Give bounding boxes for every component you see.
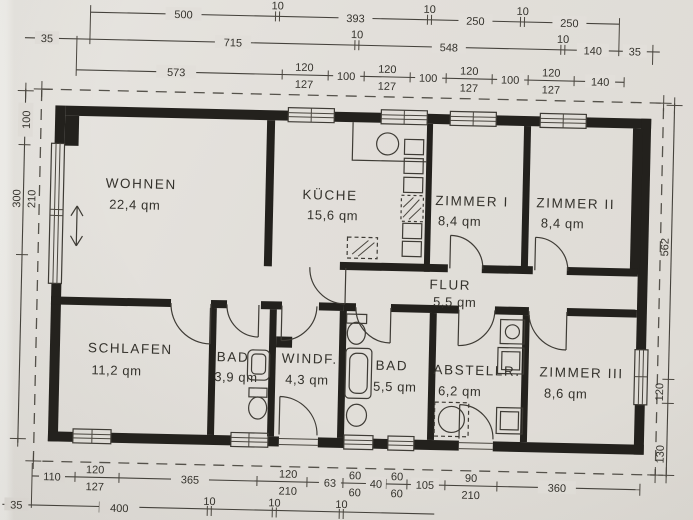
dim-label: 250: [466, 16, 485, 28]
dim-label: 10: [557, 34, 570, 46]
dim-label: 35: [629, 46, 642, 58]
window: [288, 108, 334, 123]
dim-label: 300: [11, 189, 23, 208]
room-area: 8,4 qm: [438, 213, 482, 229]
dim-label: 105: [416, 480, 435, 492]
dim-label: 60: [348, 487, 361, 499]
room-area: 22,4 qm: [109, 197, 161, 213]
dimension-chain-bottom: 110 120 127 365 120 210 63 60 60 40 60 6…: [2, 462, 640, 520]
room-name: BAD: [217, 349, 250, 365]
dim-label: 100: [419, 73, 438, 85]
dim-label: 573: [167, 67, 186, 79]
dim-label: 35: [10, 499, 23, 511]
window: [634, 350, 648, 405]
dim-label: 250: [560, 18, 579, 30]
stove-dashed: [347, 237, 377, 259]
dimension-chain-left: 100 300 210: [6, 82, 41, 447]
dim-label: 127: [85, 481, 104, 493]
dim-label: 140: [591, 77, 610, 89]
dim-label: 60: [391, 471, 404, 483]
dim-label: 60: [349, 470, 362, 482]
dimension-chain-right: 562 120 130: [652, 97, 683, 483]
door-zimmer-3: [528, 311, 567, 350]
dim-label: 140: [583, 45, 602, 57]
dim-label: 35: [41, 33, 54, 45]
scanned-floor-plan-photo: 500 10 393 10 250 10 250 35 715 10 548 1…: [0, 0, 693, 520]
entrance-door: [279, 397, 319, 446]
dim-label: 365: [181, 474, 200, 486]
door-schlafen: [170, 303, 211, 344]
room-name: KÜCHE: [302, 187, 358, 203]
dimension-chain-top: 500 10 393 10 250 10 250 35 715 10 548 1…: [24, 0, 661, 99]
rear-door: [459, 405, 494, 450]
window: [48, 143, 64, 283]
kitchen-sink: [376, 133, 398, 155]
room-name: FLUR: [429, 277, 471, 293]
dim-label: 10: [335, 499, 348, 511]
room-area: 5,5 qm: [373, 379, 417, 395]
dim-label: 360: [548, 483, 567, 495]
room-area: 15,6 qm: [307, 207, 359, 223]
windows: [45, 102, 654, 456]
dim-label: 120: [86, 464, 105, 476]
floor-plan-drawing: 500 10 393 10 250 10 250 35 715 10 548 1…: [0, 0, 693, 520]
dim-label: 548: [440, 42, 459, 54]
window: [450, 111, 496, 126]
dim-label: 10: [423, 4, 436, 16]
dim-label: 110: [43, 471, 61, 483]
bathroom-large-fixtures: [344, 314, 373, 427]
room-name: ZIMMER III: [539, 364, 624, 381]
window: [540, 113, 586, 128]
room-area: 5,5 qm: [433, 294, 477, 310]
dim-label: 100: [337, 71, 356, 83]
exterior-walls: [48, 105, 651, 454]
dim-label: 393: [346, 13, 365, 25]
dim-label: 90: [465, 473, 478, 485]
dim-label: 120: [378, 64, 397, 76]
room-name: BAD: [375, 358, 408, 374]
room-area: 11,2 qm: [91, 362, 142, 378]
dim-label: 130: [654, 445, 666, 464]
dim-label: 40: [370, 479, 383, 491]
door-windfang: [281, 306, 317, 342]
room-name: ABSTELLR.: [433, 362, 521, 379]
window: [381, 110, 427, 125]
dim-label: 10: [351, 29, 364, 41]
door-zimmer-1: [450, 235, 484, 269]
door-abstellraum: [458, 310, 495, 347]
door-zimmer-2: [535, 237, 569, 271]
wash-basin: [346, 404, 366, 426]
dim-label: 127: [378, 81, 397, 93]
dim-label: 100: [501, 74, 520, 86]
dim-label: 10: [203, 496, 216, 508]
toilet: [249, 388, 267, 397]
dim-label: 120: [654, 383, 666, 402]
window: [344, 435, 373, 450]
kitchen-counter: [352, 122, 427, 162]
dim-label: 120: [295, 62, 314, 74]
dim-label: 210: [26, 190, 38, 209]
dim-label: 120: [460, 66, 479, 78]
dim-label: 10: [516, 6, 529, 18]
room-area: 8,4 qm: [541, 215, 585, 231]
dim-label: 10: [268, 497, 281, 509]
dim-label: 10: [271, 0, 284, 12]
doors: [168, 229, 569, 451]
dim-label: 400: [110, 503, 129, 515]
dim-label: 500: [174, 9, 193, 21]
window: [231, 432, 268, 447]
kitchen-fixtures: [347, 122, 427, 260]
dim-label: 210: [461, 490, 480, 502]
room-name: ZIMMER II: [536, 195, 615, 212]
window: [73, 429, 111, 444]
dim-label: 120: [279, 469, 298, 481]
dim-label: 120: [542, 67, 561, 79]
washing-machine: [434, 402, 469, 437]
dim-label: 210: [278, 486, 297, 498]
room-area: 8,6 qm: [544, 386, 588, 402]
dim-label: 715: [224, 37, 243, 49]
dim-label: 562: [659, 238, 671, 257]
dim-label: 100: [21, 110, 33, 129]
room-name: WOHNEN: [106, 176, 177, 193]
dim-label: 60: [390, 488, 403, 500]
dim-label: 127: [460, 83, 479, 95]
room-name: ZIMMER I: [435, 193, 509, 210]
door-flur-west: [309, 267, 346, 304]
height-arrow: [70, 206, 83, 246]
room-name: SCHLAFEN: [88, 340, 173, 357]
window: [388, 436, 414, 451]
room-area: 6,2 qm: [438, 383, 482, 399]
room-area: 3,9 qm: [214, 369, 258, 385]
dim-label: 127: [295, 79, 314, 91]
dim-label: 127: [542, 84, 561, 96]
room-area: 4,3 qm: [285, 372, 329, 388]
dim-label: 63: [324, 478, 337, 490]
room-name: WINDF.: [282, 351, 338, 367]
room-labels: WOHNEN 22,4 qm KÜCHE 15,6 qm ZIMMER I 8,…: [87, 175, 628, 402]
door-bad-small: [226, 304, 259, 337]
sink-unit: [500, 320, 525, 345]
door-bad-large: [355, 307, 391, 343]
